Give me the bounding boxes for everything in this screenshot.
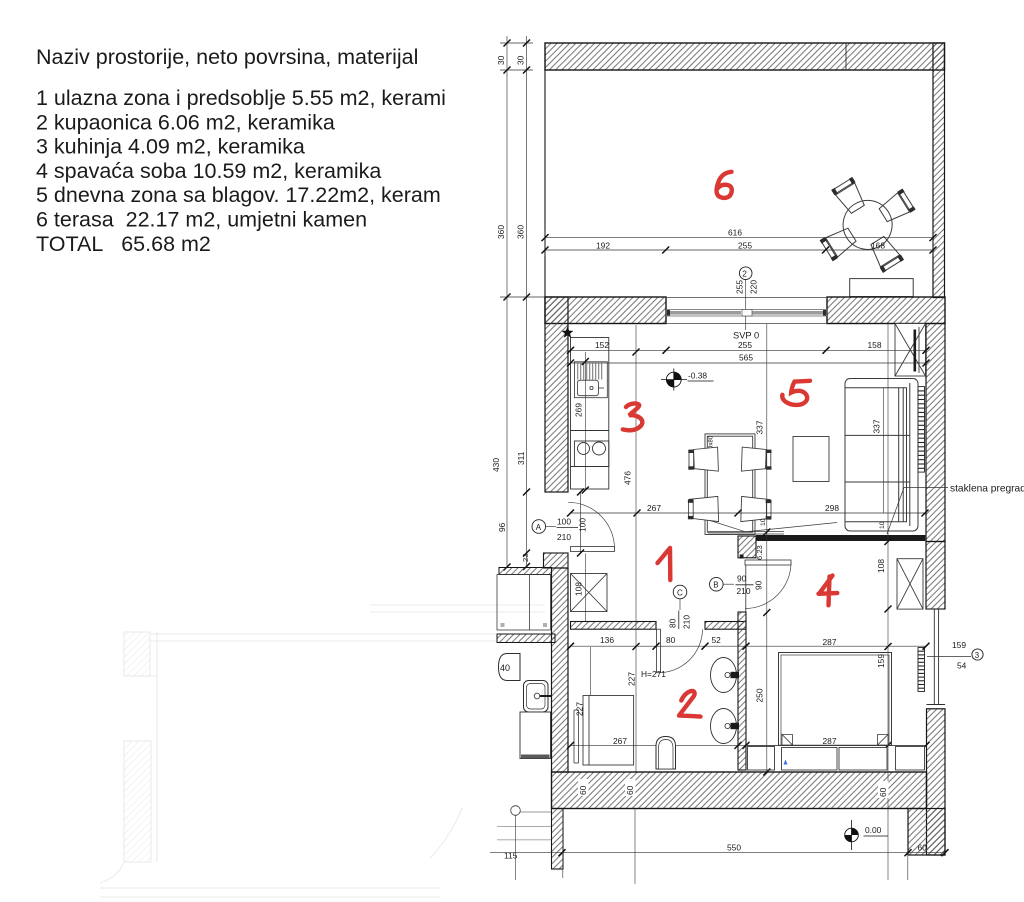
svg-text:616: 616 bbox=[728, 228, 742, 238]
svg-text:B: B bbox=[713, 581, 718, 590]
svg-text:5 dnevna zona sa blagov. 17.22: 5 dnevna zona sa blagov. 17.22m2, keram bbox=[36, 183, 441, 207]
svg-text:108: 108 bbox=[876, 559, 886, 573]
svg-text:267: 267 bbox=[613, 736, 627, 746]
svg-text:-0.38: -0.38 bbox=[688, 370, 707, 380]
svg-text:159: 159 bbox=[876, 654, 886, 668]
svg-text:192: 192 bbox=[596, 241, 610, 251]
svg-text:54: 54 bbox=[957, 661, 967, 671]
svg-text:1 ulazna zona i predsoblje 5.5: 1 ulazna zona i predsoblje 5.55 m2, kera… bbox=[36, 86, 446, 110]
svg-text:210: 210 bbox=[557, 532, 571, 542]
svg-text:SVP 0: SVP 0 bbox=[733, 331, 759, 341]
svg-text:6 terasa 22.17 m2, umjetni ka: 6 terasa 22.17 m2, umjetni kamen bbox=[36, 208, 367, 232]
svg-text:60: 60 bbox=[625, 785, 635, 795]
svg-text:H=271: H=271 bbox=[641, 669, 666, 679]
svg-text:10: 10 bbox=[879, 521, 886, 529]
svg-text:269: 269 bbox=[574, 403, 584, 417]
svg-text:40: 40 bbox=[500, 663, 510, 673]
svg-text:158: 158 bbox=[868, 340, 882, 350]
svg-text:255: 255 bbox=[735, 280, 745, 294]
svg-text:360: 360 bbox=[496, 225, 506, 239]
svg-text:96: 96 bbox=[497, 522, 507, 532]
svg-text:550: 550 bbox=[727, 843, 741, 853]
svg-text:255: 255 bbox=[738, 241, 752, 251]
svg-text:210: 210 bbox=[737, 586, 751, 596]
svg-text:108: 108 bbox=[574, 582, 584, 596]
svg-text:90: 90 bbox=[737, 574, 747, 584]
svg-text:136: 136 bbox=[600, 635, 614, 645]
svg-text:476: 476 bbox=[623, 471, 633, 485]
svg-text:90: 90 bbox=[754, 580, 764, 590]
svg-text:2: 2 bbox=[742, 268, 747, 278]
svg-text:6.23: 6.23 bbox=[755, 545, 764, 560]
svg-text:298: 298 bbox=[825, 503, 839, 513]
svg-text:311: 311 bbox=[516, 451, 526, 465]
svg-text:2 kupaonica 6.06 m2, keramika: 2 kupaonica 6.06 m2, keramika bbox=[36, 110, 335, 134]
svg-text:250: 250 bbox=[755, 688, 765, 702]
svg-text:3 kuhinja 4.09 m2, keramika: 3 kuhinja 4.09 m2, keramika bbox=[36, 135, 305, 159]
svg-text:0.00: 0.00 bbox=[865, 825, 882, 835]
svg-text:60: 60 bbox=[878, 787, 888, 797]
svg-text:52: 52 bbox=[712, 635, 722, 645]
svg-text:337: 337 bbox=[872, 419, 882, 433]
svg-text:60: 60 bbox=[918, 843, 928, 853]
svg-text:565: 565 bbox=[739, 353, 753, 363]
svg-text:210: 210 bbox=[682, 615, 692, 629]
svg-text:30: 30 bbox=[496, 55, 506, 65]
svg-text:430: 430 bbox=[491, 458, 501, 472]
svg-text:staklena pregrad: staklena pregrad bbox=[950, 484, 1024, 495]
svg-text:227: 227 bbox=[575, 702, 585, 716]
svg-text:168: 168 bbox=[871, 241, 885, 251]
svg-text:152: 152 bbox=[595, 340, 609, 350]
svg-text:3: 3 bbox=[975, 651, 979, 660]
svg-text:TOTAL 65.68 m2: TOTAL 65.68 m2 bbox=[36, 232, 211, 256]
svg-text:Naziv prostorije, neto povrsin: Naziv prostorije, neto povrsina, materij… bbox=[36, 45, 418, 69]
svg-text:80: 80 bbox=[668, 618, 678, 628]
svg-text:4 spavaća soba 10.59 m2, keram: 4 spavaća soba 10.59 m2, keramika bbox=[36, 159, 381, 183]
svg-text:287: 287 bbox=[823, 637, 837, 647]
svg-text:337: 337 bbox=[755, 420, 765, 434]
svg-text:C: C bbox=[677, 588, 683, 597]
svg-text:220: 220 bbox=[749, 280, 759, 294]
svg-text:A: A bbox=[536, 523, 542, 532]
svg-text:100: 100 bbox=[557, 517, 571, 527]
svg-text:159: 159 bbox=[952, 640, 966, 650]
svg-text:360: 360 bbox=[516, 225, 526, 239]
svg-text:10: 10 bbox=[760, 518, 767, 526]
svg-text:30: 30 bbox=[516, 55, 526, 65]
svg-text:60: 60 bbox=[578, 785, 588, 795]
svg-text:100: 100 bbox=[578, 518, 588, 532]
svg-text:80: 80 bbox=[666, 635, 676, 645]
svg-text:23: 23 bbox=[521, 554, 530, 562]
svg-text:267: 267 bbox=[647, 503, 661, 513]
svg-text:227: 227 bbox=[627, 672, 637, 686]
svg-text:287: 287 bbox=[823, 736, 837, 746]
svg-text:255: 255 bbox=[738, 340, 752, 350]
